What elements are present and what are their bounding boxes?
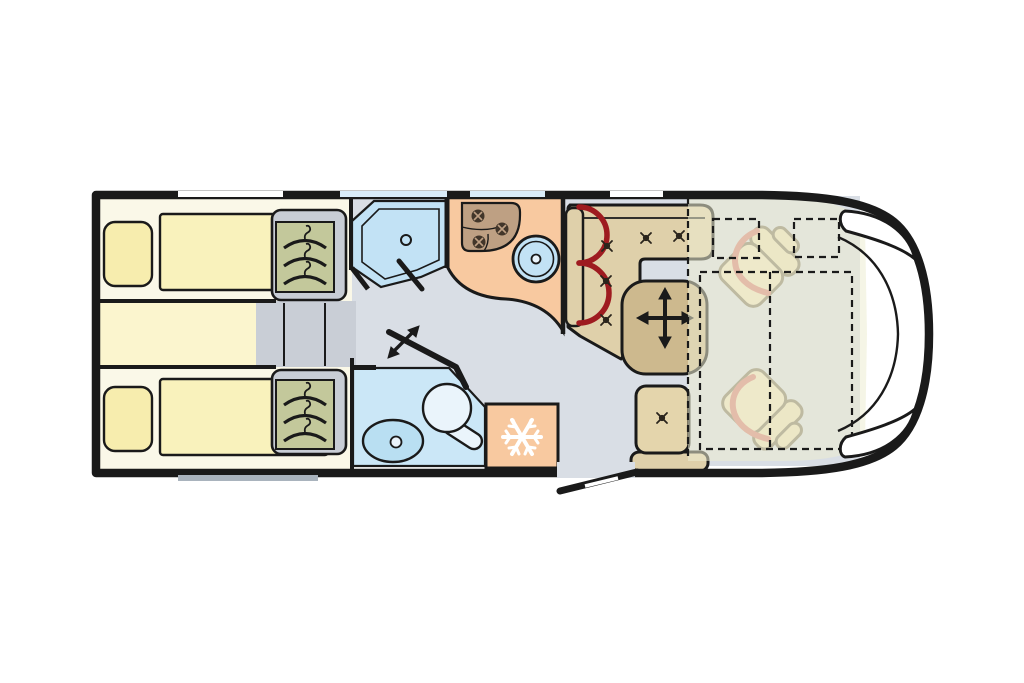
drop-down-bed-overlay <box>688 197 867 461</box>
side-window <box>470 191 545 197</box>
basin-drain <box>391 437 402 448</box>
side-window <box>610 191 663 197</box>
pillow <box>104 387 152 451</box>
side-window <box>340 191 447 197</box>
rear-bedroom <box>96 196 356 470</box>
rear-window <box>178 475 318 481</box>
burner-icon <box>496 223 509 236</box>
pillow <box>104 222 152 286</box>
fridge <box>486 404 558 468</box>
motorhome-floorplan <box>0 0 1024 683</box>
side-window <box>178 191 283 197</box>
bed-steps <box>256 301 356 367</box>
burner-icon <box>472 210 485 223</box>
wardrobe-bottom <box>272 370 346 454</box>
kitchen-sink <box>513 236 559 282</box>
bench-backrest <box>566 208 583 326</box>
bed-platform <box>98 301 258 367</box>
burner-icon <box>473 236 486 249</box>
wardrobe-top <box>272 210 346 300</box>
floorplan-svg <box>0 0 1024 683</box>
toilet <box>423 384 471 432</box>
